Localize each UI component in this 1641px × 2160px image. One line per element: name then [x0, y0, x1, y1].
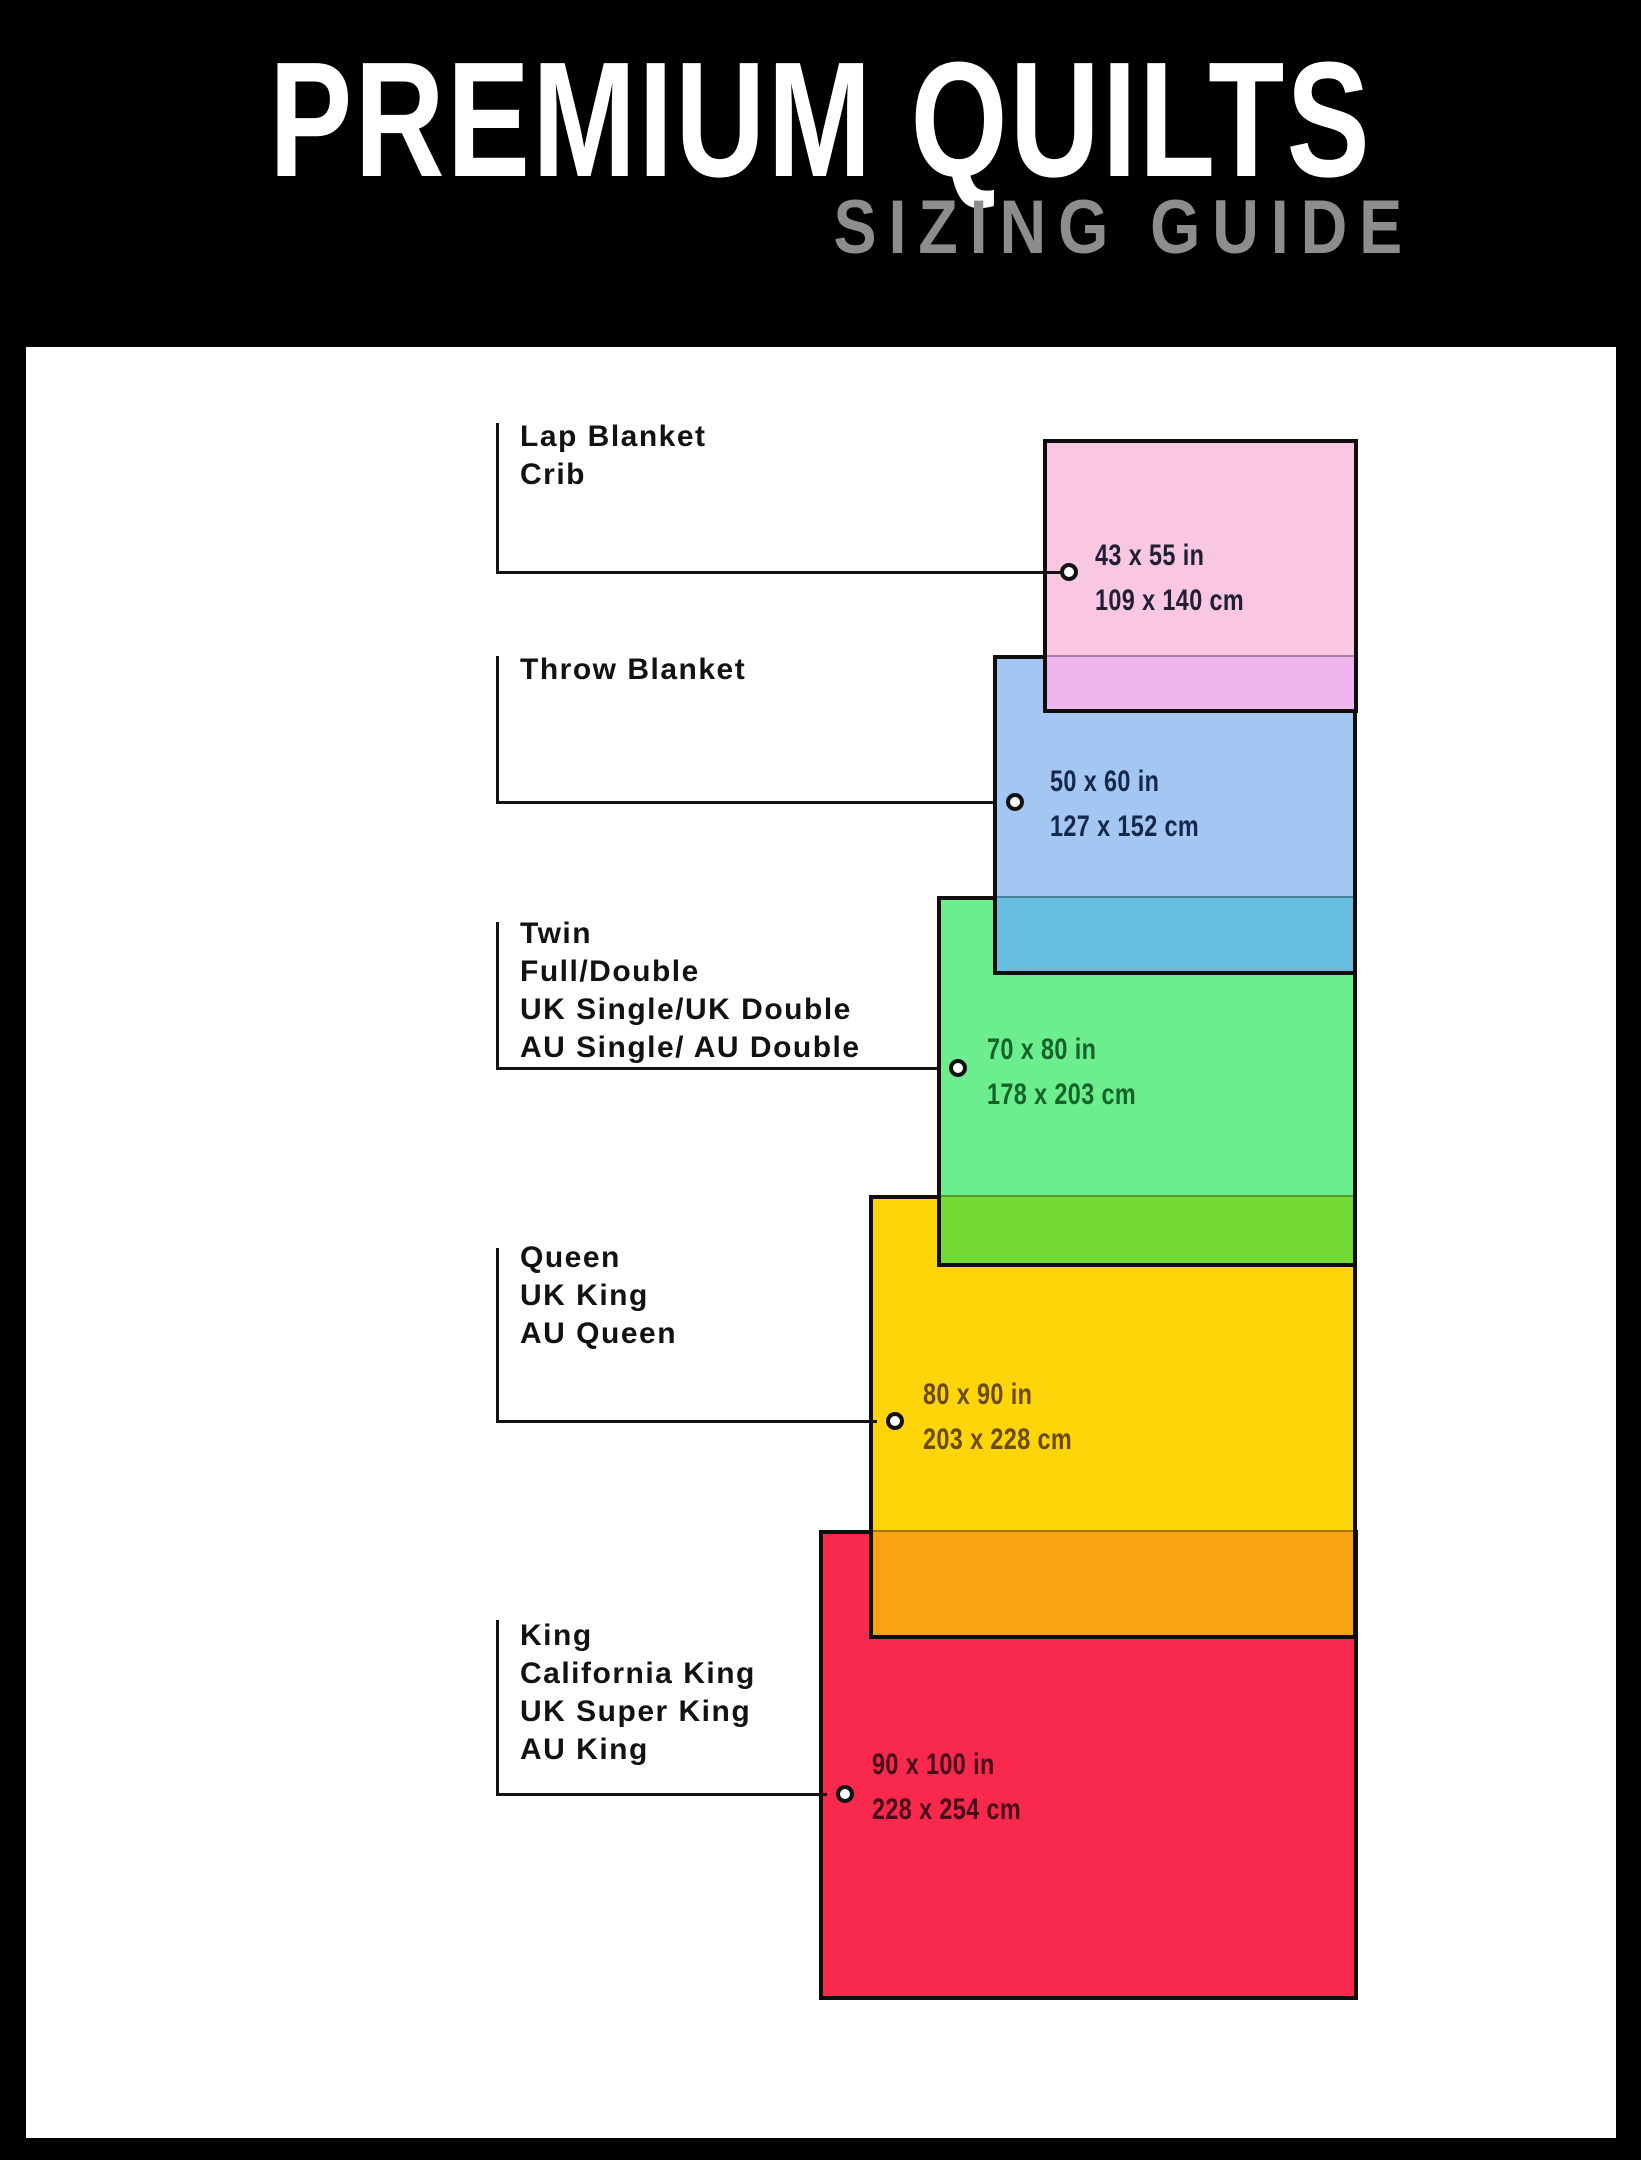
label-lap-blanket-crib: Lap Blanket Crib	[520, 418, 707, 494]
label-line: Crib	[520, 456, 707, 494]
dimension-cm: 203 x 228 cm	[923, 1417, 1072, 1462]
leader-dot-throw	[1006, 793, 1024, 811]
overlap-queen-over-king	[873, 1530, 1353, 1635]
dimension-cm: 109 x 140 cm	[1095, 578, 1244, 623]
label-line: King	[520, 1617, 756, 1655]
dimension-inches: 90 x 100 in	[872, 1742, 1021, 1787]
leader-line-horizontal-lap	[496, 571, 1062, 574]
page-title: PREMIUM QUILTS	[269, 38, 1372, 202]
leader-line-vertical-lap	[496, 423, 499, 574]
label-line: AU Queen	[520, 1315, 677, 1353]
dimensions-queen: 80 x 90 in 203 x 228 cm	[923, 1372, 1114, 1462]
overlap-throw-over-twin	[997, 896, 1353, 971]
dimension-inches: 43 x 55 in	[1095, 533, 1244, 578]
leader-line-horizontal-queen	[496, 1420, 877, 1423]
label-throw-blanket: Throw Blanket	[520, 651, 746, 689]
leader-dot-king	[836, 1785, 854, 1803]
label-line: Lap Blanket	[520, 418, 707, 456]
dimension-inches: 80 x 90 in	[923, 1372, 1072, 1417]
label-line: Full/Double	[520, 953, 861, 991]
label-line: AU King	[520, 1731, 756, 1769]
label-line: Queen	[520, 1239, 677, 1277]
label-line: California King	[520, 1655, 756, 1693]
header: PREMIUM QUILTS	[0, 38, 1641, 202]
dimensions-lap-blanket-crib: 43 x 55 in 109 x 140 cm	[1095, 533, 1286, 623]
leader-dot-lap	[1060, 563, 1078, 581]
label-king: King California King UK Super King AU Ki…	[520, 1617, 756, 1769]
dimensions-king: 90 x 100 in 228 x 254 cm	[872, 1742, 1063, 1832]
label-line: UK Single/UK Double	[520, 991, 861, 1029]
overlap-lap-over-throw	[1047, 655, 1354, 709]
dimensions-twin: 70 x 80 in 178 x 203 cm	[987, 1027, 1178, 1117]
label-line: Twin	[520, 915, 861, 953]
label-queen: Queen UK King AU Queen	[520, 1239, 677, 1353]
leader-line-vertical-king	[496, 1620, 499, 1796]
label-line: AU Single/ AU Double	[520, 1029, 861, 1067]
leader-line-vertical-queen	[496, 1248, 499, 1423]
label-line: UK Super King	[520, 1693, 756, 1731]
dimension-cm: 178 x 203 cm	[987, 1072, 1136, 1117]
page-subtitle: SIZING GUIDE	[833, 190, 1414, 266]
dimension-cm: 127 x 152 cm	[1050, 804, 1199, 849]
sizing-guide-poster: PREMIUM QUILTS SIZING GUIDE 43 x 55 in 1…	[0, 0, 1641, 2160]
subheader: SIZING GUIDE	[731, 190, 1400, 266]
leader-line-horizontal-throw	[496, 801, 997, 804]
dimension-inches: 50 x 60 in	[1050, 759, 1199, 804]
leader-line-vertical-twin	[496, 922, 499, 1070]
label-twin: Twin Full/Double UK Single/UK Double AU …	[520, 915, 861, 1067]
leader-line-horizontal-twin	[496, 1067, 940, 1070]
label-line: UK King	[520, 1277, 677, 1315]
leader-dot-queen	[886, 1412, 904, 1430]
label-line: Throw Blanket	[520, 651, 746, 689]
diagram-canvas: 43 x 55 in 109 x 140 cm 50 x 60 in 127 x…	[26, 347, 1616, 2138]
overlap-twin-over-queen	[941, 1195, 1353, 1263]
leader-line-horizontal-king	[496, 1793, 827, 1796]
dimension-cm: 228 x 254 cm	[872, 1787, 1021, 1832]
dimension-inches: 70 x 80 in	[987, 1027, 1136, 1072]
leader-dot-twin	[949, 1059, 967, 1077]
leader-line-vertical-throw	[496, 656, 499, 804]
dimensions-throw-blanket: 50 x 60 in 127 x 152 cm	[1050, 759, 1241, 849]
